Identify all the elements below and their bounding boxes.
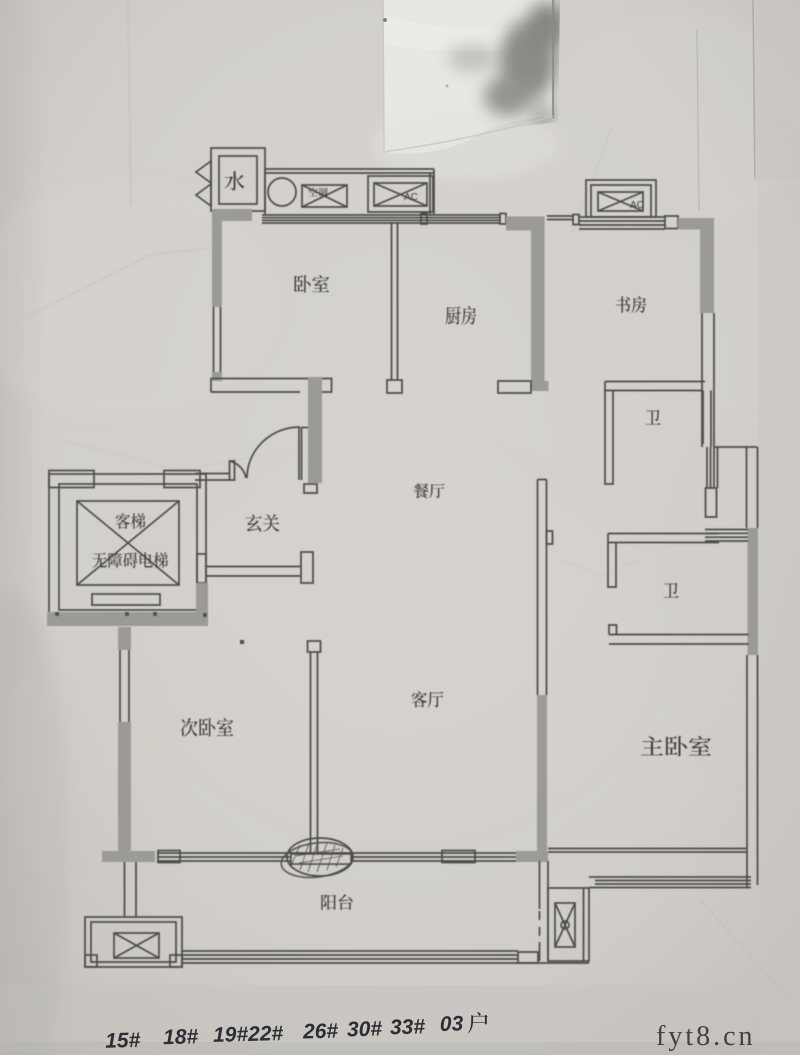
svg-text:03: 03 xyxy=(440,1012,464,1036)
svg-text:19#22#: 19#22# xyxy=(213,1022,284,1047)
svg-text:AC: AC xyxy=(404,192,418,203)
svg-text:18#: 18# xyxy=(163,1025,199,1049)
svg-text:AC: AC xyxy=(630,200,644,211)
svg-text:33#: 33# xyxy=(390,1015,426,1039)
svg-text:26#: 26# xyxy=(302,1020,339,1044)
svg-text:15#: 15# xyxy=(105,1029,141,1053)
svg-text:fyt8.cn: fyt8.cn xyxy=(656,1021,756,1052)
svg-text:30#: 30# xyxy=(347,1017,383,1041)
